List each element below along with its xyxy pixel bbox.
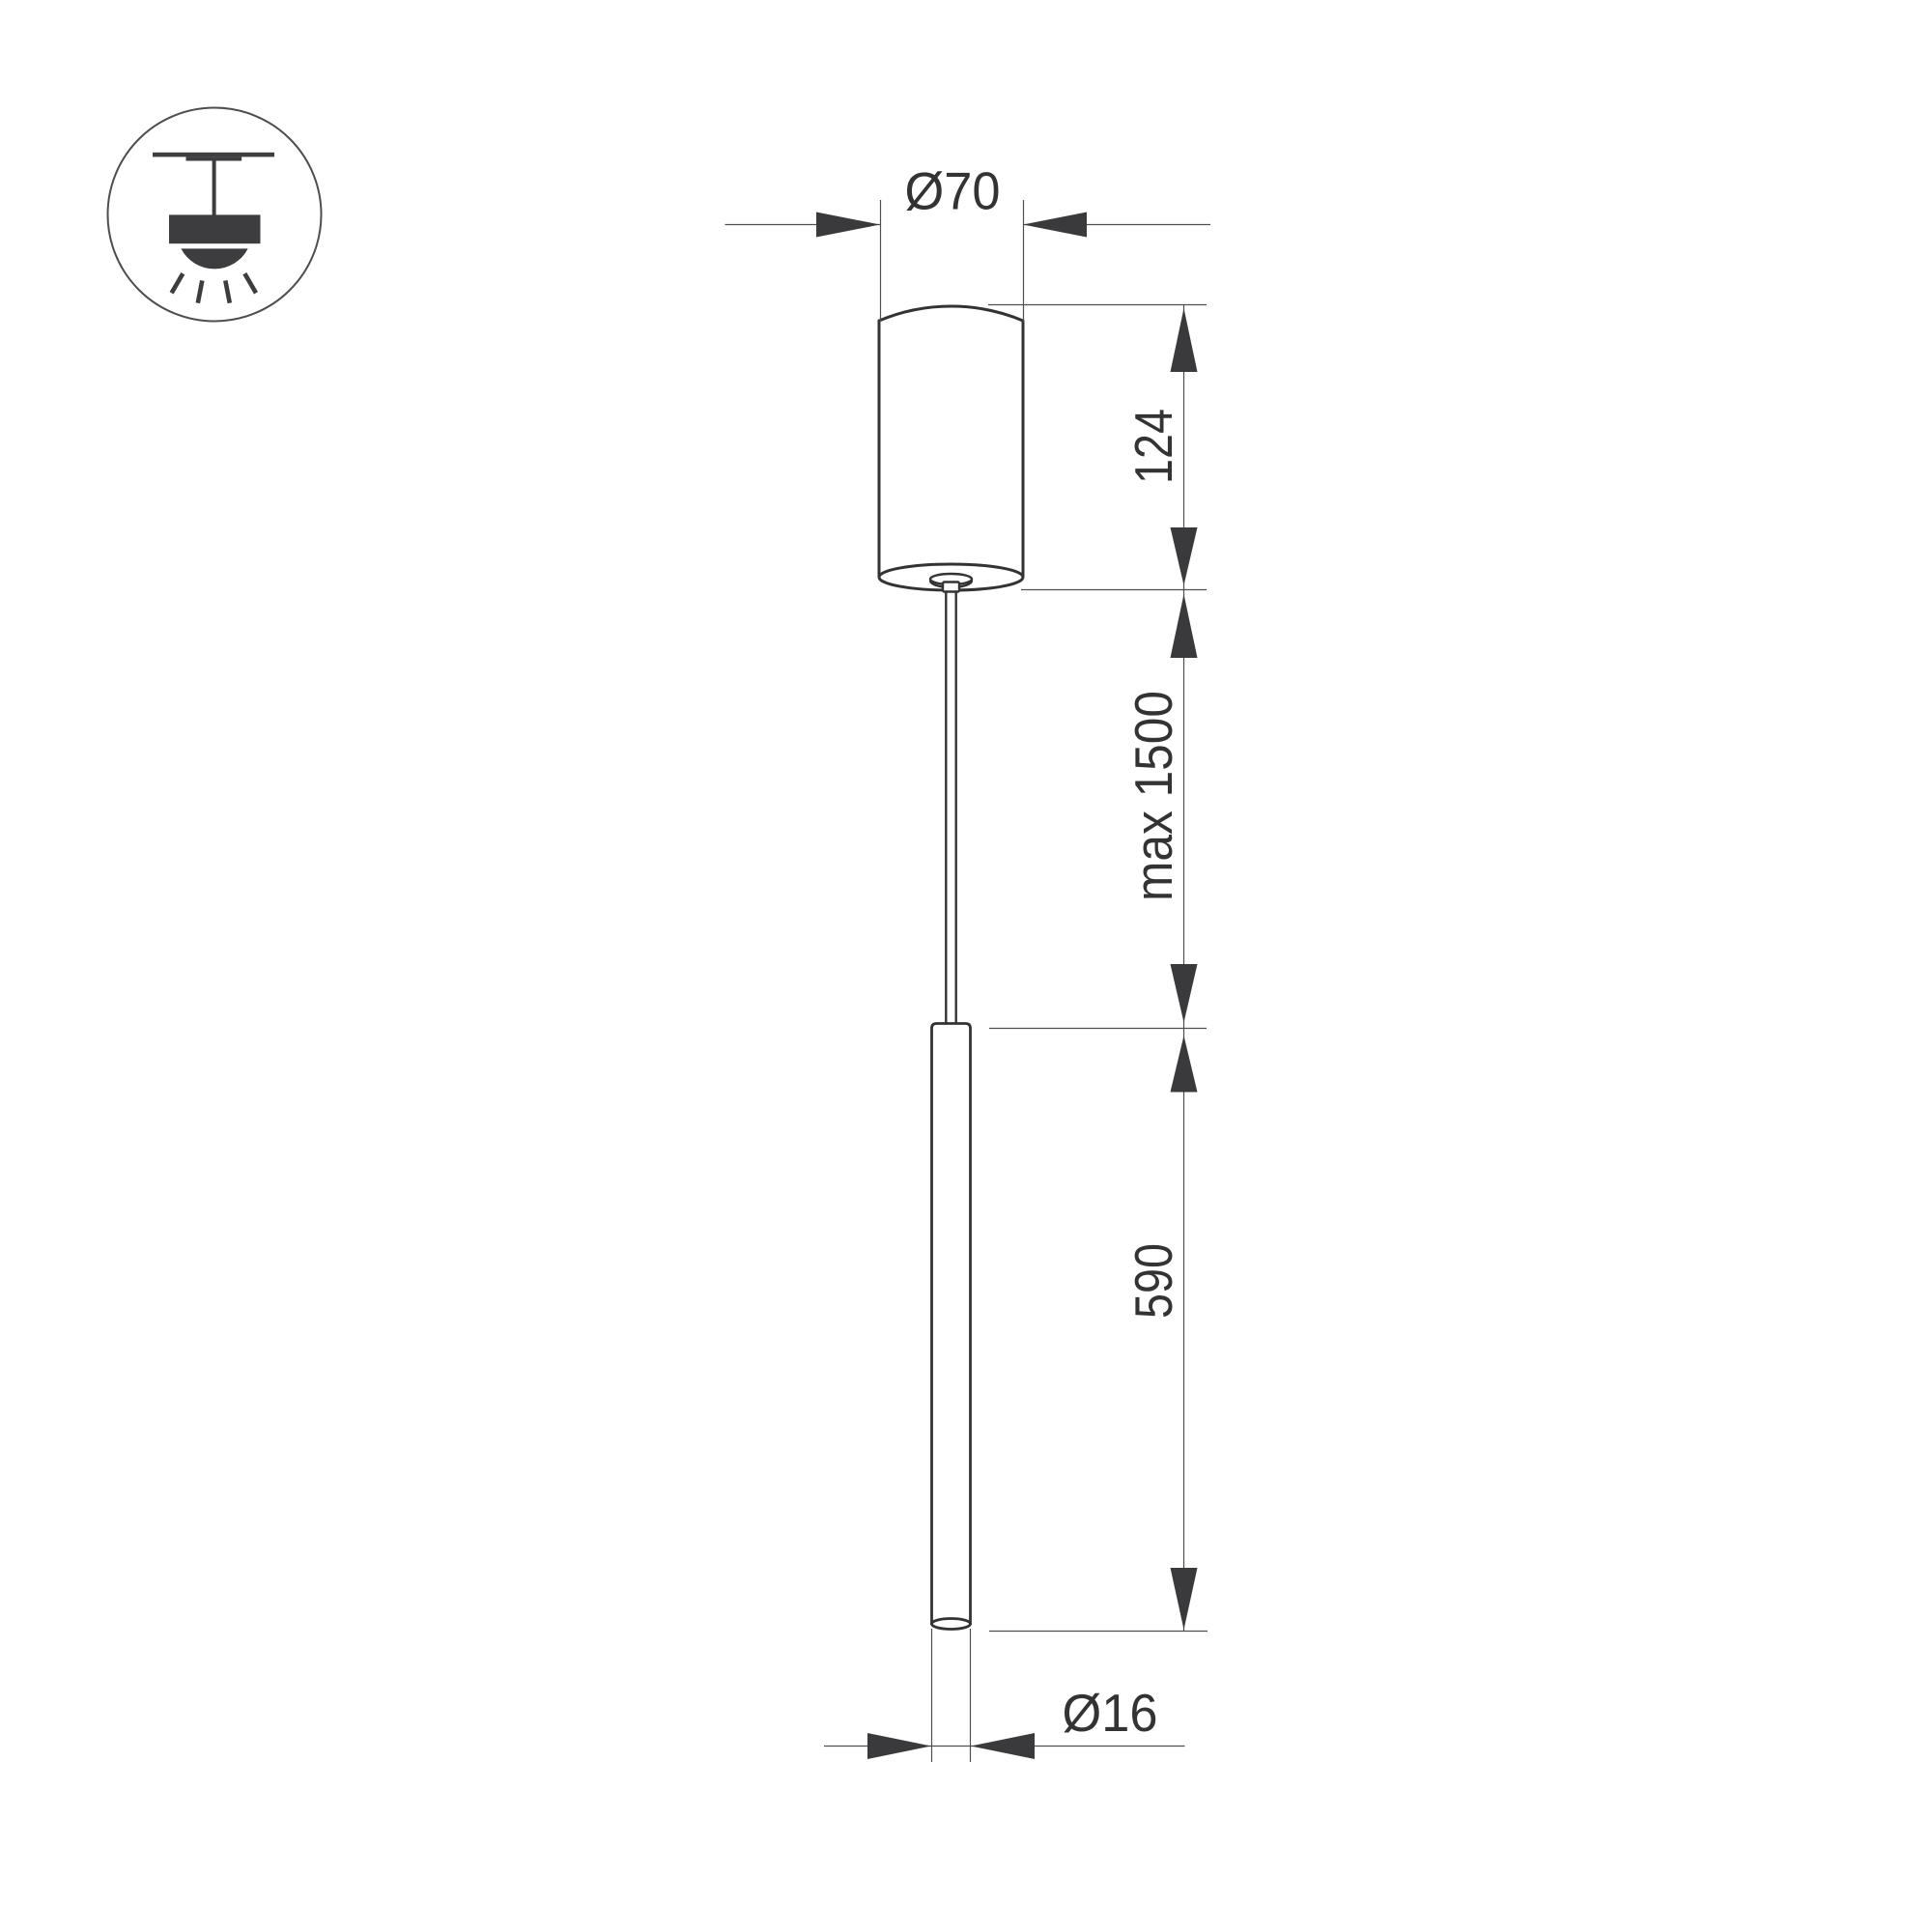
svg-text:Ø16: Ø16 [1063,1683,1158,1743]
svg-text:590: 590 [1123,1243,1183,1319]
svg-text:max 1500: max 1500 [1123,691,1183,901]
svg-text:Ø70: Ø70 [905,161,1001,221]
svg-text:124: 124 [1123,409,1183,484]
